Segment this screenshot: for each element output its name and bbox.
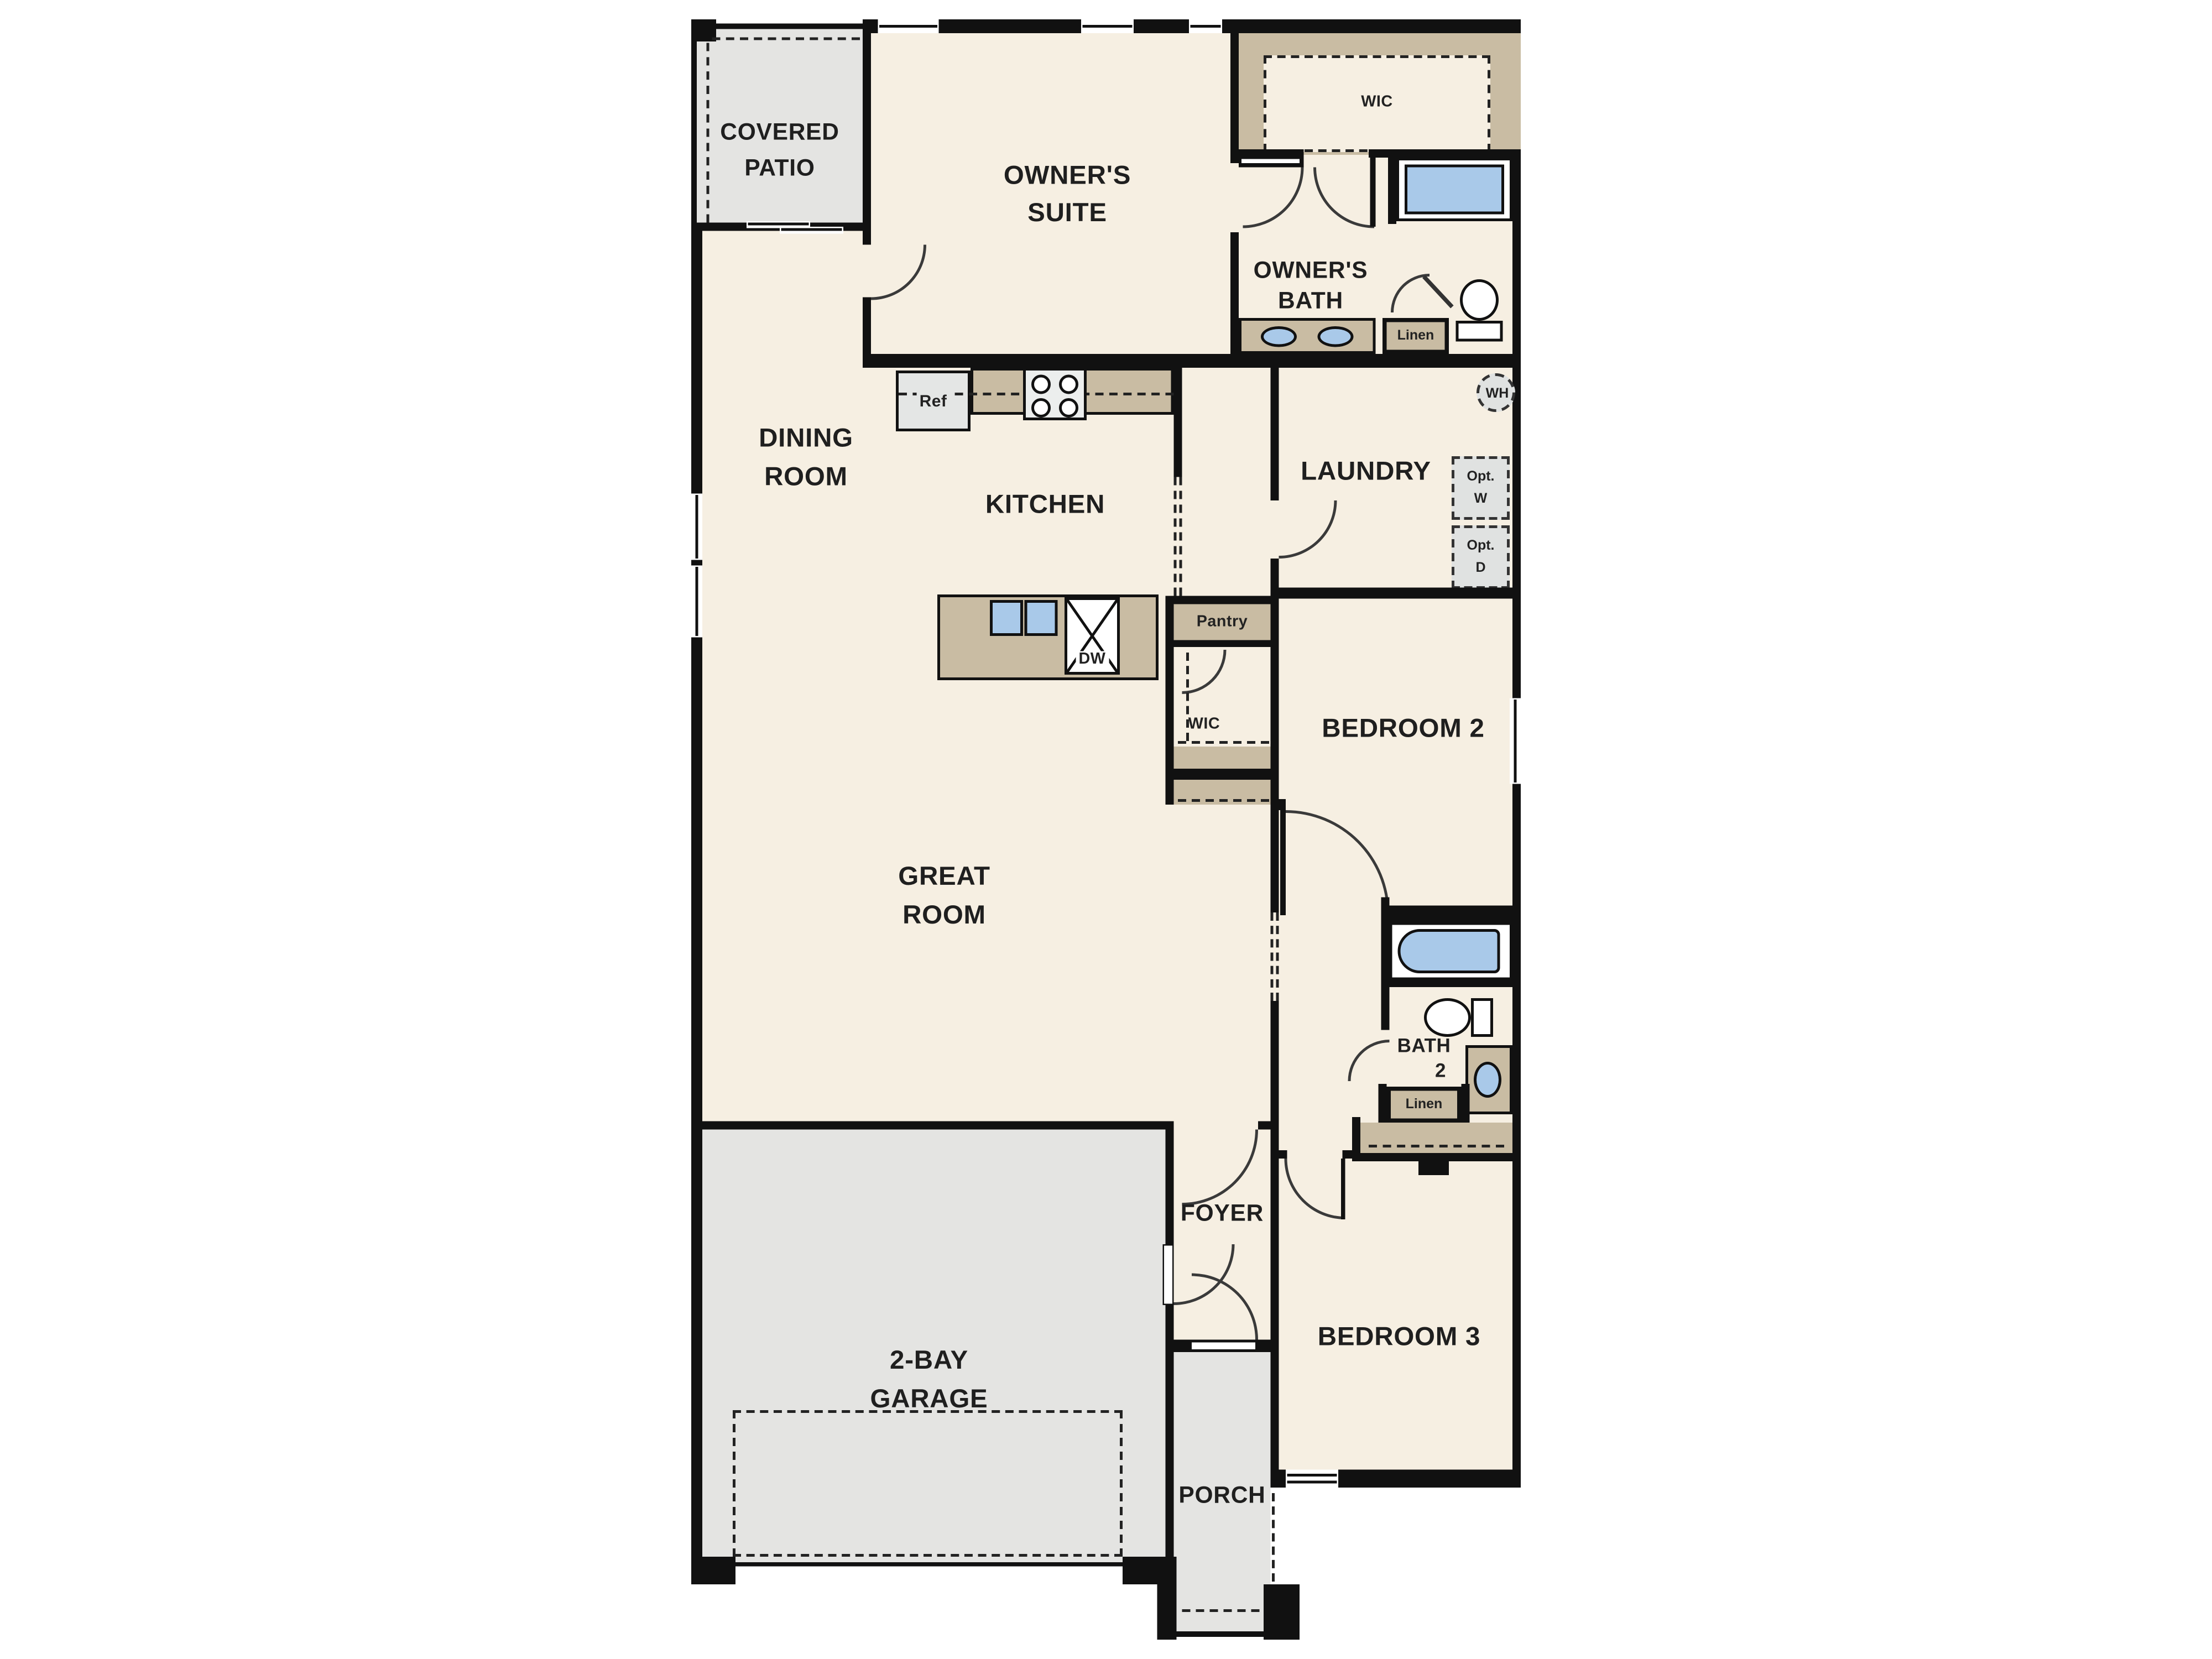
toilet-tank-icon bbox=[1471, 998, 1493, 1037]
wall bbox=[1230, 33, 1239, 163]
window-icon bbox=[691, 566, 702, 638]
room-label-laundry: LAUNDRY bbox=[1301, 458, 1431, 488]
room-label-owners-suite: SUITE bbox=[1027, 199, 1107, 229]
door-leaf bbox=[1341, 1159, 1345, 1219]
label-linen-owner: Linen bbox=[1397, 328, 1434, 344]
room-label-dining: ROOM bbox=[764, 463, 848, 494]
wall bbox=[863, 24, 871, 245]
label-opt-w: Opt. bbox=[1467, 469, 1495, 485]
label-dw: DW bbox=[1076, 651, 1109, 668]
room-label-great-room: ROOM bbox=[902, 901, 986, 932]
window-icon bbox=[1081, 19, 1134, 33]
wall bbox=[1381, 898, 1390, 1030]
wall bbox=[1271, 599, 1279, 913]
room-label-wic-owner: WIC bbox=[1361, 94, 1392, 111]
wall bbox=[1258, 1340, 1279, 1353]
wall bbox=[1166, 1130, 1174, 1245]
label-linen-bath2: Linen bbox=[1406, 1097, 1443, 1113]
room-label-kitchen: KITCHEN bbox=[985, 491, 1105, 521]
room-label-covered-patio: PATIO bbox=[744, 155, 815, 182]
closet-shelf-dash bbox=[1369, 1145, 1504, 1147]
wall bbox=[1174, 354, 1182, 477]
cased-opening-dash bbox=[1271, 912, 1274, 1001]
sliding-door-icon bbox=[780, 227, 843, 234]
wall bbox=[1369, 149, 1521, 158]
room-label-great-room: GREAT bbox=[898, 863, 990, 893]
window-icon bbox=[1189, 19, 1222, 33]
room-label-owners-bath: BATH bbox=[1278, 288, 1343, 315]
window-icon bbox=[1286, 1470, 1338, 1488]
stove-icon bbox=[1023, 368, 1087, 420]
room-label-bath2: BATH bbox=[1397, 1034, 1451, 1056]
wall bbox=[1166, 640, 1279, 648]
toilet-icon bbox=[1460, 279, 1499, 321]
garage-door-line bbox=[735, 1562, 1123, 1567]
wall bbox=[1271, 1001, 1279, 1488]
wall bbox=[1271, 1150, 1287, 1159]
wall bbox=[691, 24, 697, 231]
wall bbox=[691, 24, 871, 29]
sink-icon bbox=[1474, 1062, 1501, 1098]
cased-opening-dash bbox=[1180, 477, 1182, 596]
garage-door-dashed-outline bbox=[733, 1410, 1123, 1557]
label-ref: Ref bbox=[917, 392, 950, 411]
room-label-pantry: Pantry bbox=[1197, 614, 1248, 630]
door-leaf bbox=[1280, 810, 1286, 915]
wall bbox=[863, 298, 871, 357]
wall bbox=[1258, 1121, 1279, 1130]
patio-dashed-edge bbox=[712, 38, 860, 40]
label-opt-d: Opt. bbox=[1467, 539, 1495, 554]
sink-icon bbox=[1261, 326, 1297, 347]
wall-slot bbox=[1241, 159, 1300, 164]
wall bbox=[1230, 232, 1239, 354]
closet-shelving bbox=[1360, 1123, 1512, 1153]
label-opt-w: W bbox=[1474, 492, 1488, 507]
wall bbox=[1390, 906, 1521, 922]
opt-washer-box bbox=[1452, 456, 1510, 520]
porch-dashed-edge bbox=[1182, 1609, 1260, 1612]
room-label-bath2: 2 bbox=[1435, 1059, 1446, 1081]
room-label-bedroom3: BEDROOM 3 bbox=[1318, 1323, 1480, 1354]
window-icon bbox=[1510, 698, 1521, 784]
wall bbox=[1379, 1084, 1387, 1123]
cased-opening-dash bbox=[1174, 477, 1177, 596]
sink-icon bbox=[1318, 326, 1354, 347]
wall bbox=[1271, 588, 1521, 599]
room-label-bedroom2: BEDROOM 2 bbox=[1322, 715, 1484, 745]
wall bbox=[1166, 1348, 1174, 1557]
wall bbox=[1352, 1153, 1512, 1161]
room-label-garage: 2-BAY bbox=[890, 1347, 968, 1377]
wall bbox=[1166, 596, 1279, 604]
wall bbox=[863, 354, 1239, 368]
wall bbox=[691, 1557, 735, 1584]
wall bbox=[1271, 799, 1286, 810]
wall bbox=[1271, 368, 1279, 500]
room-label-foyer: FOYER bbox=[1181, 1200, 1264, 1228]
front-door-leaf bbox=[1189, 1340, 1258, 1353]
wall bbox=[1388, 158, 1396, 224]
door-leaf bbox=[1370, 158, 1376, 227]
cased-opening-dash bbox=[1276, 912, 1279, 1001]
sink-icon bbox=[990, 600, 1023, 636]
wall bbox=[1343, 1150, 1353, 1159]
bathtub-icon bbox=[1398, 929, 1500, 973]
closet-shelf-dash bbox=[1178, 741, 1269, 744]
closet-shelving bbox=[1174, 747, 1271, 769]
toilet-tank-icon bbox=[1456, 321, 1503, 342]
wall bbox=[1418, 1161, 1449, 1175]
room-label-wic-hall: WIC bbox=[1188, 716, 1220, 733]
shower-pan-icon bbox=[1405, 165, 1504, 215]
garage-entry-door-leaf bbox=[1163, 1244, 1174, 1305]
porch-dashed-edge bbox=[1272, 1493, 1275, 1582]
patio-dashed-edge bbox=[707, 43, 709, 223]
toilet-icon bbox=[1424, 998, 1471, 1037]
wall bbox=[1390, 980, 1513, 988]
wall bbox=[1166, 769, 1279, 780]
wall bbox=[1462, 1084, 1470, 1123]
room-label-owners-suite: OWNER'S bbox=[1004, 162, 1131, 192]
room-label-owners-bath: OWNER'S bbox=[1254, 257, 1368, 285]
window-icon bbox=[691, 494, 702, 560]
label-wh: WH bbox=[1486, 387, 1509, 402]
room-label-covered-patio: COVERED bbox=[720, 119, 839, 147]
opt-dryer-box bbox=[1452, 525, 1510, 589]
window-icon bbox=[878, 19, 939, 33]
room-label-dining: DINING bbox=[759, 425, 853, 455]
sink-icon bbox=[1025, 600, 1058, 636]
closet-shelf-dash bbox=[1178, 799, 1269, 802]
label-opt-d: D bbox=[1475, 561, 1485, 576]
wall bbox=[1157, 1557, 1177, 1640]
wall bbox=[691, 223, 702, 1585]
porch-edge-line bbox=[1157, 1631, 1300, 1637]
vanity-counter bbox=[1239, 318, 1376, 354]
floor-plan: COVERED PATIO OWNER'S SUITE WIC OWNER'S … bbox=[0, 0, 2212, 1659]
wall bbox=[691, 1121, 1174, 1130]
wall bbox=[1230, 354, 1521, 368]
room-label-porch: PORCH bbox=[1178, 1482, 1265, 1510]
